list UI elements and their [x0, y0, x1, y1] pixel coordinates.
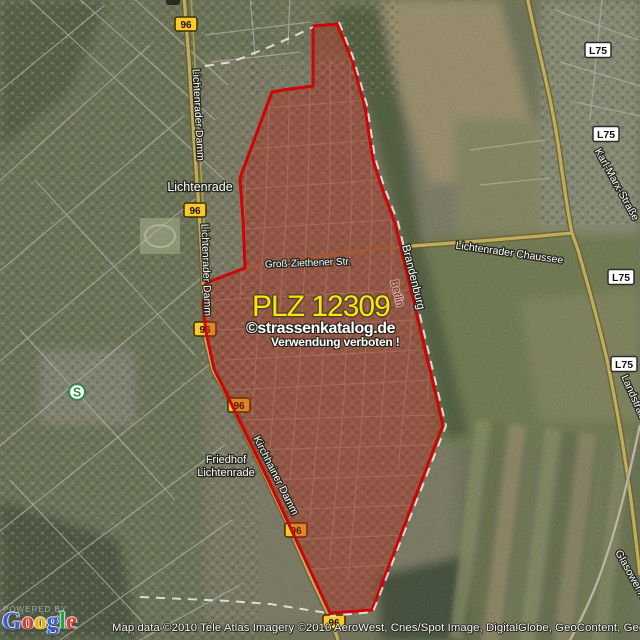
- road-shield-l75: L75: [593, 127, 619, 142]
- google-logo-letter: G: [2, 608, 21, 635]
- svg-text:L75: L75: [597, 129, 615, 141]
- road-shield-b96: 96: [175, 17, 197, 31]
- svg-text:96: 96: [189, 206, 201, 217]
- svg-text:L75: L75: [615, 359, 633, 371]
- street-label-friedhof-line1: Friedhof: [206, 454, 247, 466]
- label-stub: [166, 0, 180, 5]
- svg-text:L75: L75: [589, 45, 607, 57]
- svg-text:96: 96: [328, 618, 340, 629]
- street-label-city-lichtenrade: Lichtenrade: [167, 180, 232, 194]
- google-logo-letter: e: [66, 608, 77, 635]
- satellite-map: 969696969696 LichtenradeFriedhofLichtenr…: [0, 0, 640, 640]
- sbahn-station-icon[interactable]: S: [69, 384, 85, 400]
- map-canvas[interactable]: 969696969696 LichtenradeFriedhofLichtenr…: [0, 0, 640, 640]
- svg-text:S: S: [73, 386, 81, 400]
- google-logo-letter: l: [59, 608, 66, 635]
- street-label-friedhof-line2: Lichtenrade: [197, 467, 255, 479]
- google-logo-letter: g: [46, 608, 59, 635]
- road-shield-b96: 96: [323, 615, 345, 629]
- google-logo-letter: o: [21, 608, 34, 635]
- road-shield-l75: L75: [611, 357, 637, 372]
- road-shield-l75: L75: [608, 270, 634, 285]
- svg-text:L75: L75: [612, 272, 630, 284]
- svg-text:96: 96: [180, 20, 192, 31]
- road-shield-b96: 96: [184, 203, 206, 217]
- google-logo[interactable]: Google: [2, 609, 77, 634]
- road-shield-l75: L75: [585, 43, 611, 58]
- google-logo-letter: o: [34, 608, 47, 635]
